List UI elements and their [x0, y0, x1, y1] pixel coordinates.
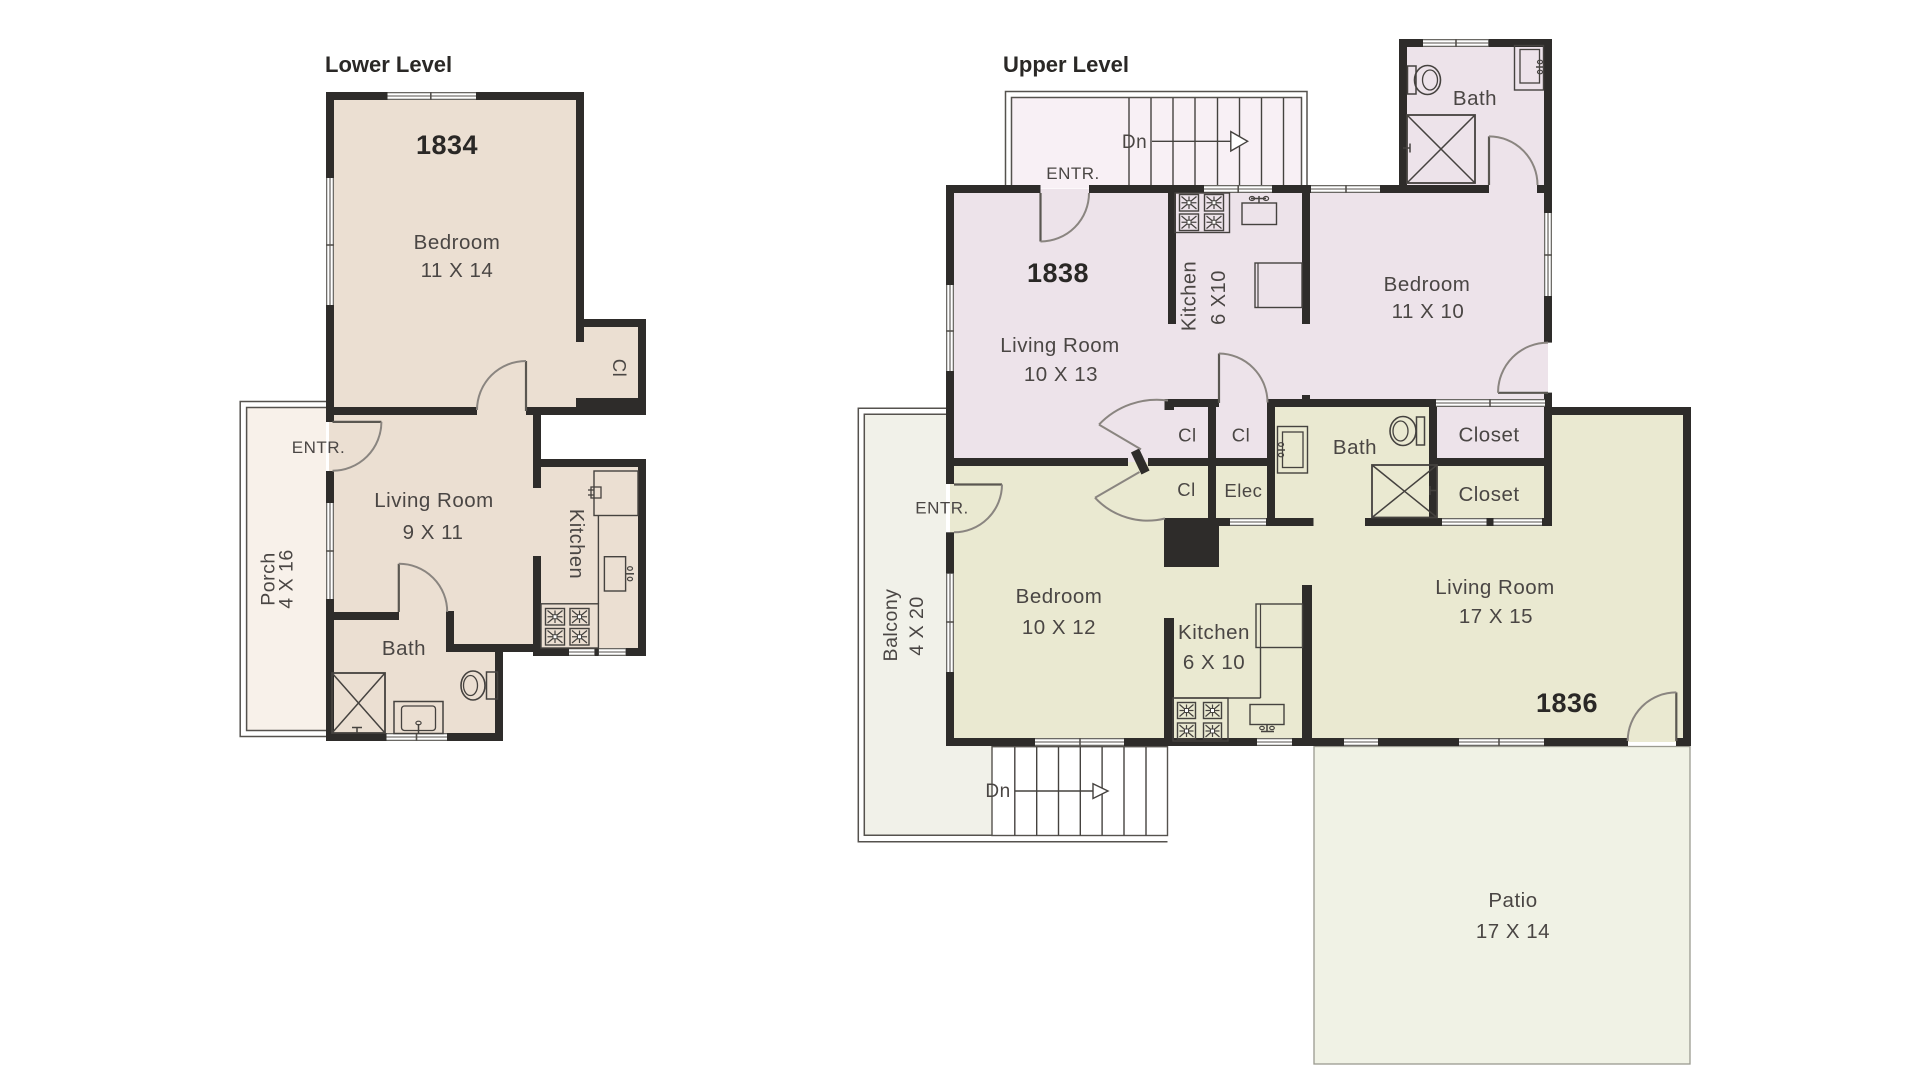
svg-text:Dn: Dn [985, 781, 1010, 802]
svg-text:Upper Level: Upper Level [1003, 52, 1129, 77]
svg-text:17 X 15: 17 X 15 [1459, 605, 1533, 628]
svg-text:ENTR.: ENTR. [292, 438, 346, 457]
svg-text:Bath: Bath [1453, 87, 1497, 110]
svg-text:Closet: Closet [1458, 483, 1519, 506]
svg-text:Patio: Patio [1488, 889, 1537, 912]
svg-text:Living Room: Living Room [1435, 576, 1554, 599]
svg-text:10 X 12: 10 X 12 [1022, 616, 1096, 639]
svg-text:Bath: Bath [382, 637, 426, 660]
svg-text:Cl: Cl [1232, 425, 1250, 446]
svg-text:1836: 1836 [1536, 688, 1598, 718]
svg-text:17 X 14: 17 X 14 [1476, 920, 1550, 943]
svg-text:Elec: Elec [1224, 480, 1262, 501]
svg-text:Kitchen: Kitchen [1179, 261, 1201, 331]
svg-text:6 X 10: 6 X 10 [1183, 651, 1245, 674]
svg-text:Kitchen: Kitchen [565, 509, 587, 579]
svg-text:Bedroom: Bedroom [1016, 585, 1103, 608]
svg-text:6 X10: 6 X10 [1208, 270, 1230, 325]
svg-text:4 X 20: 4 X 20 [906, 596, 928, 655]
svg-text:Kitchen: Kitchen [1178, 621, 1250, 644]
svg-text:10 X 13: 10 X 13 [1024, 363, 1098, 386]
svg-text:1838: 1838 [1027, 258, 1089, 288]
svg-text:Cl: Cl [1177, 479, 1195, 500]
svg-text:Closet: Closet [1458, 424, 1519, 447]
svg-text:1834: 1834 [416, 130, 478, 160]
svg-text:Balcony: Balcony [880, 589, 902, 662]
svg-text:Dn: Dn [1122, 132, 1147, 153]
svg-text:Living Room: Living Room [1000, 334, 1119, 357]
svg-text:Cl: Cl [1178, 425, 1196, 446]
svg-text:Bedroom: Bedroom [1384, 273, 1471, 296]
svg-text:ENTR.: ENTR. [915, 499, 969, 518]
svg-text:Living Room: Living Room [374, 489, 493, 512]
svg-text:Bedroom: Bedroom [414, 231, 501, 254]
svg-text:11 X 10: 11 X 10 [1392, 300, 1465, 323]
svg-text:4 X 16: 4 X 16 [276, 549, 298, 608]
svg-text:Lower Level: Lower Level [325, 52, 452, 77]
svg-text:11 X 14: 11 X 14 [421, 259, 494, 282]
svg-text:ENTR.: ENTR. [1046, 164, 1100, 183]
svg-text:Bath: Bath [1333, 436, 1377, 459]
svg-text:Cl: Cl [609, 359, 630, 377]
svg-text:9 X 11: 9 X 11 [403, 521, 464, 544]
